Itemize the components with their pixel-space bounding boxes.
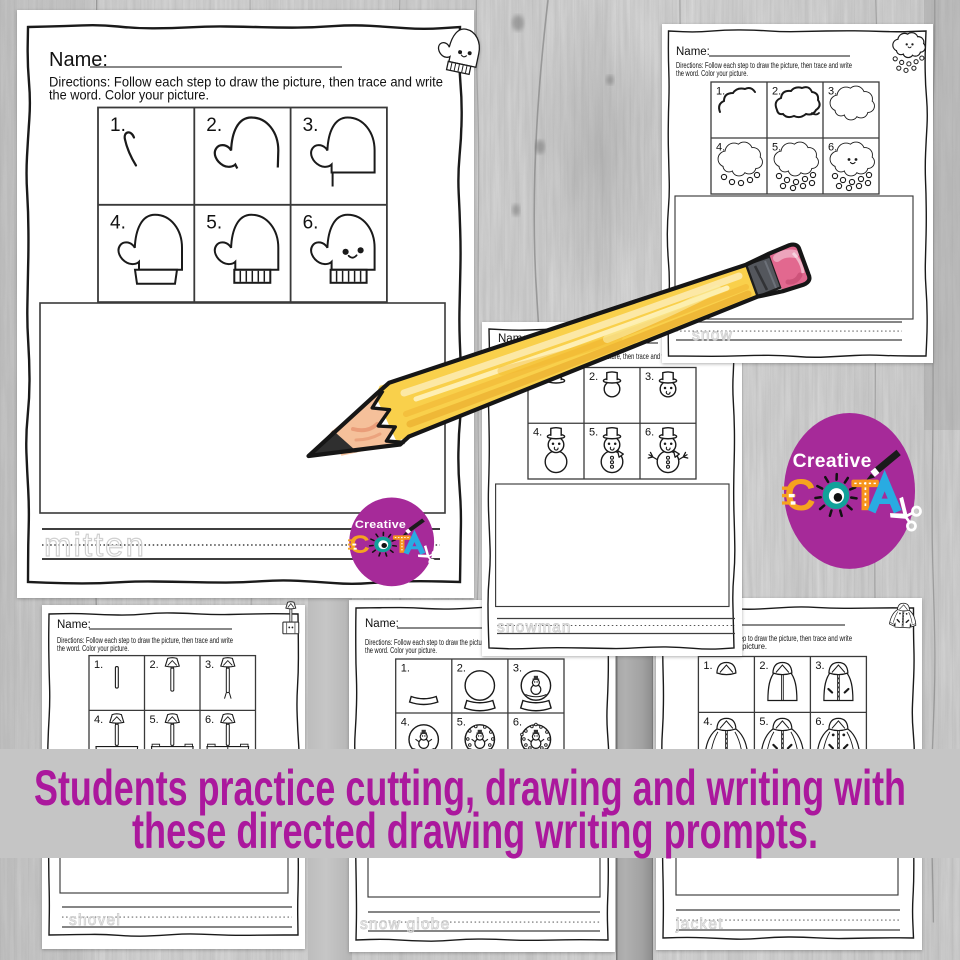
svg-text:these directed drawing writing: these directed drawing writing prompts.: [132, 803, 818, 859]
svg-text:Creative: Creative: [793, 450, 872, 472]
svg-text:Creative: Creative: [355, 518, 406, 531]
